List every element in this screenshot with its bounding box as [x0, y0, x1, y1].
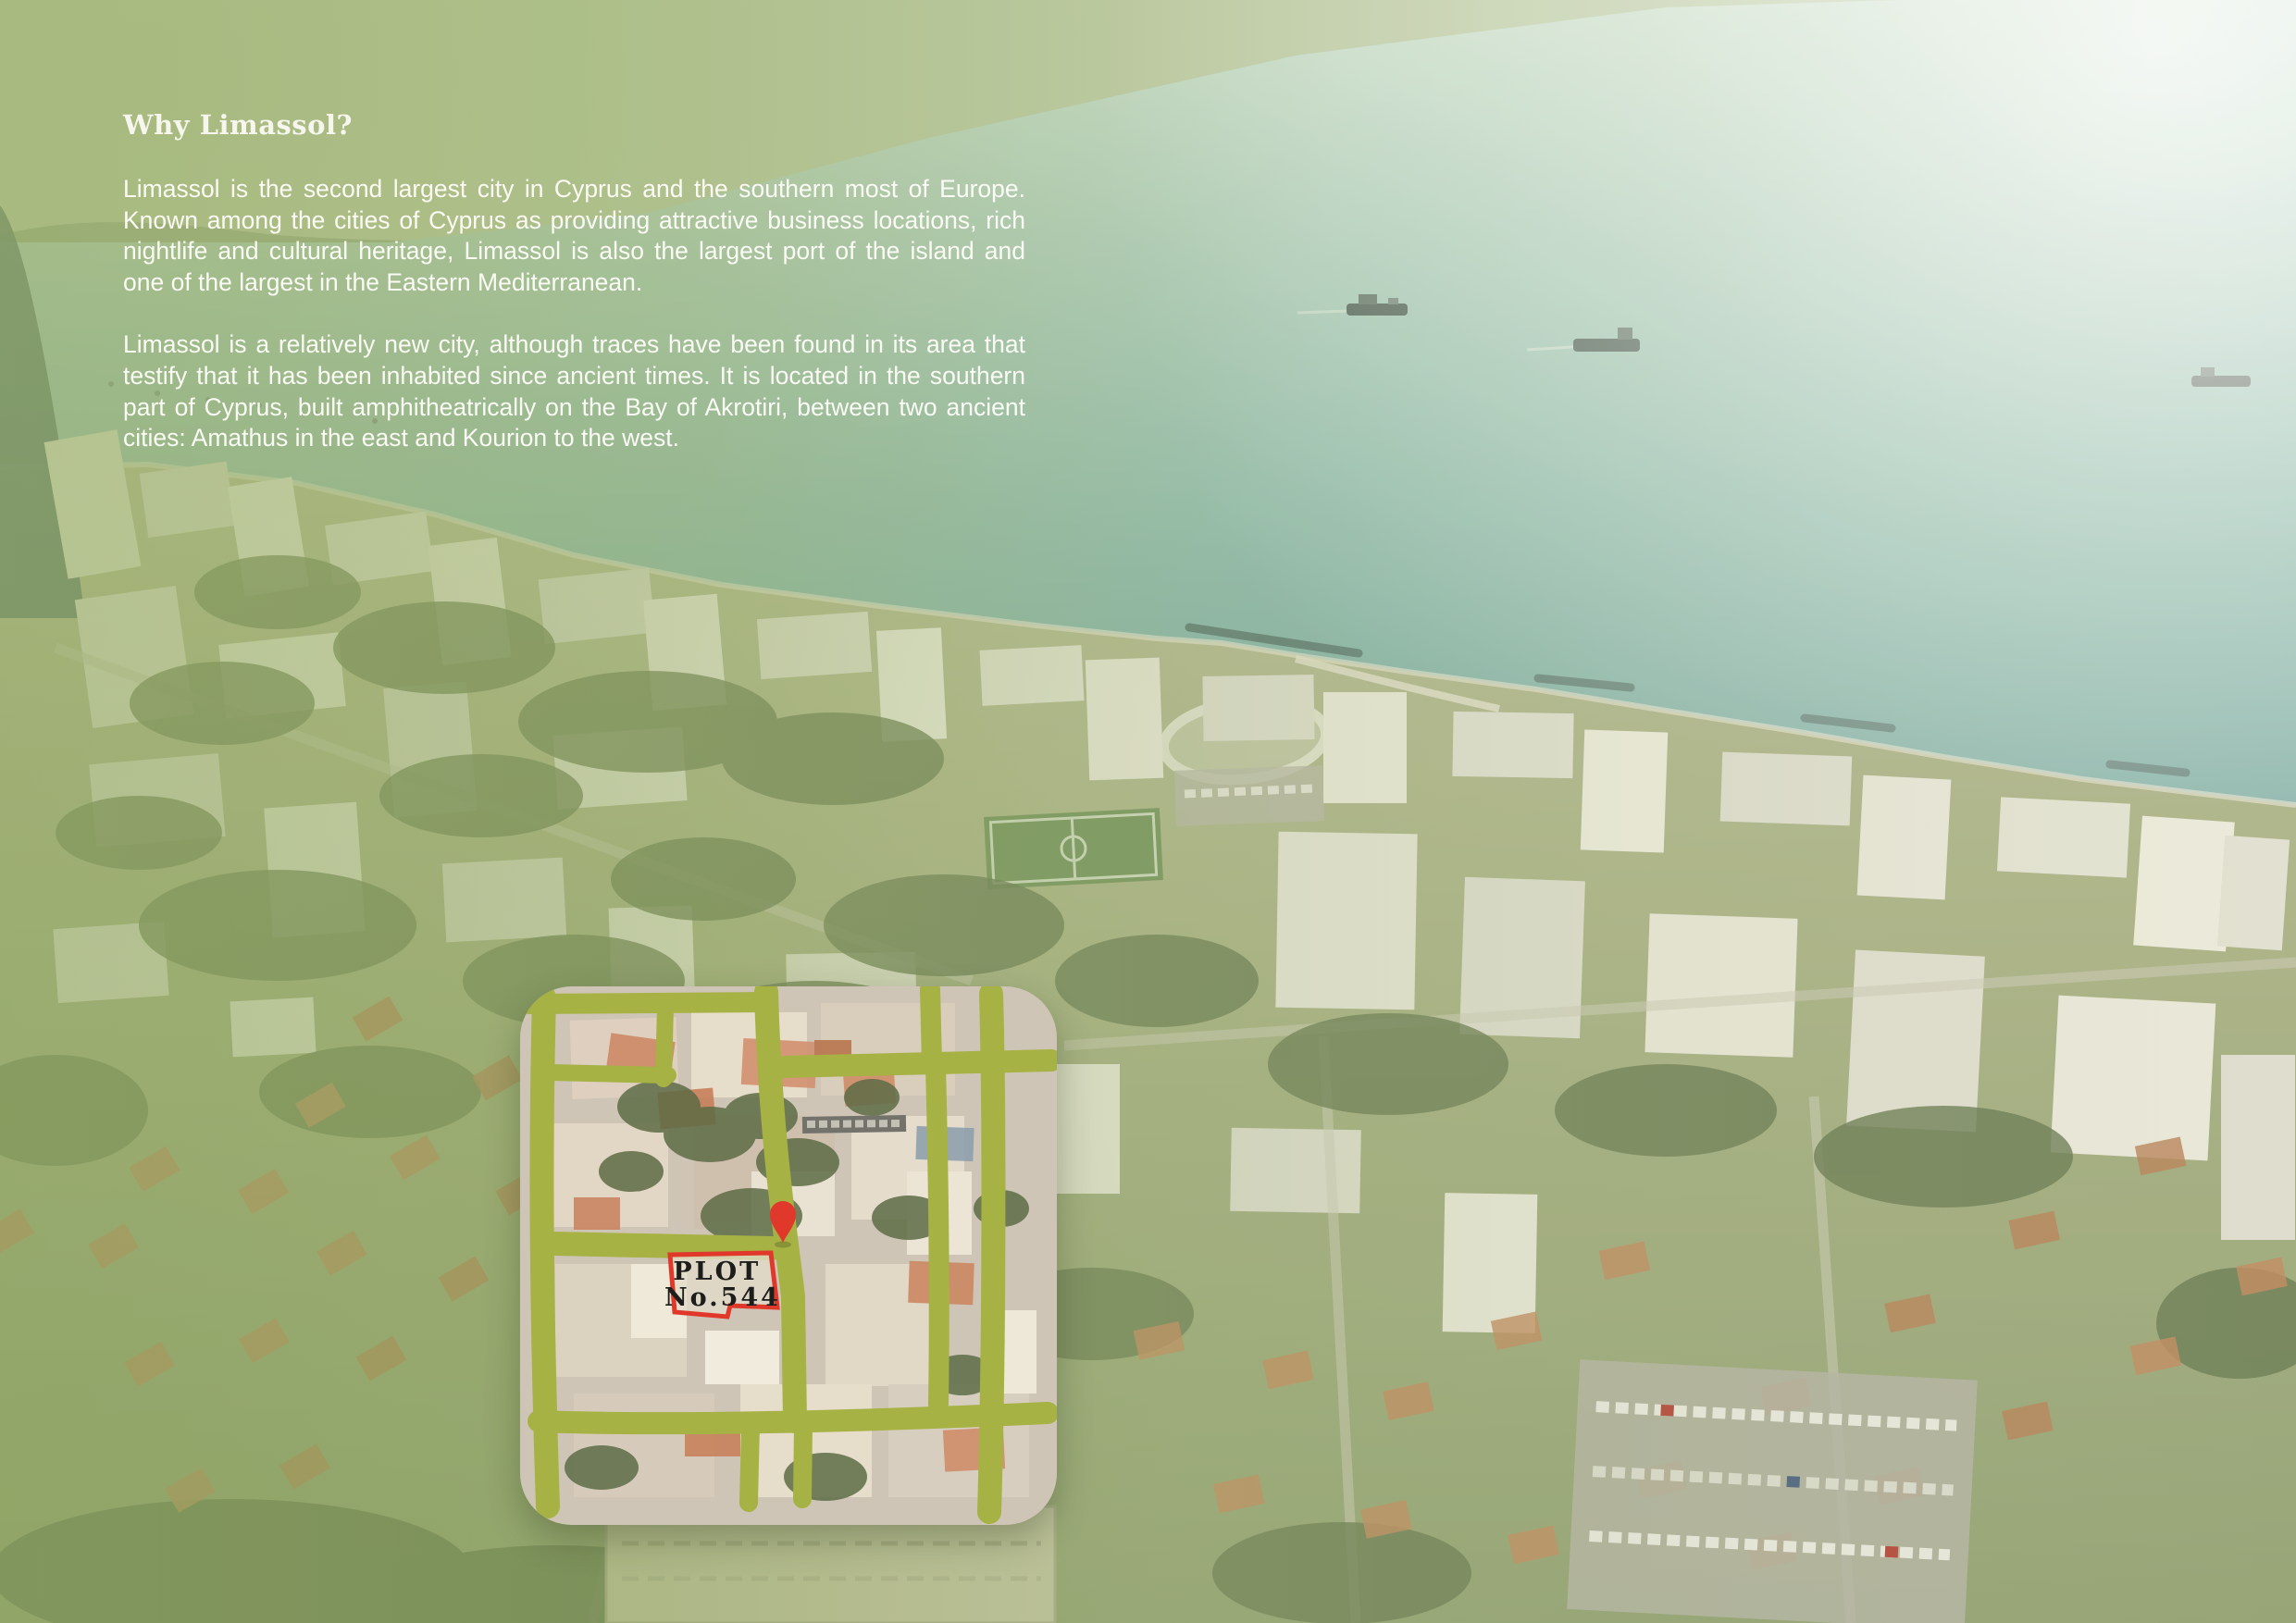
- satellite-map: PLOT No.544: [520, 986, 1057, 1525]
- plot-label: PLOT No.544: [664, 1258, 781, 1312]
- intro-paragraph-1: Limassol is the second largest city in C…: [123, 174, 1025, 298]
- location-map-inset: PLOT No.544: [520, 986, 1057, 1525]
- intro-text-block: Why Limassol? Limassol is the second lar…: [123, 109, 1025, 486]
- map-car-strip: [802, 1115, 906, 1134]
- section-heading: Why Limassol?: [123, 109, 1025, 141]
- brochure-page: Why Limassol? Limassol is the second lar…: [0, 0, 2296, 1623]
- intro-paragraph-2: Limassol is a relatively new city, altho…: [123, 329, 1025, 453]
